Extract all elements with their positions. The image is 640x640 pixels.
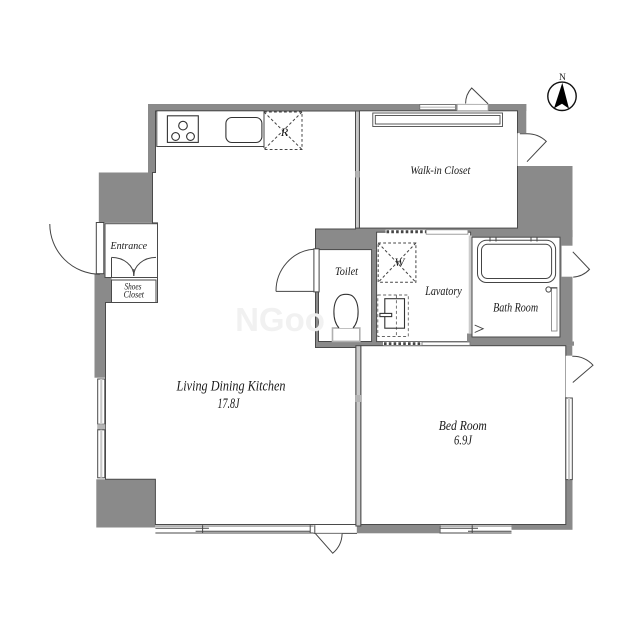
svg-text:6.9J: 6.9J	[454, 434, 473, 449]
svg-text:N: N	[559, 73, 566, 83]
svg-text:Bed Room: Bed Room	[439, 419, 487, 434]
svg-text:Closet: Closet	[124, 289, 145, 299]
svg-text:NGoo: NGoo	[235, 301, 325, 338]
svg-text:Walk-in Closet: Walk-in Closet	[410, 163, 471, 177]
svg-text:Lavatory: Lavatory	[424, 283, 461, 298]
svg-text:Entrance: Entrance	[110, 240, 148, 252]
svg-text:R: R	[280, 125, 289, 139]
svg-text:Bath Room: Bath Room	[493, 300, 538, 315]
svg-text:W: W	[395, 255, 406, 269]
svg-text:Toilet: Toilet	[335, 264, 359, 278]
svg-text:17.8J: 17.8J	[218, 396, 241, 412]
svg-text:Living Dining Kitchen: Living Dining Kitchen	[176, 379, 286, 395]
